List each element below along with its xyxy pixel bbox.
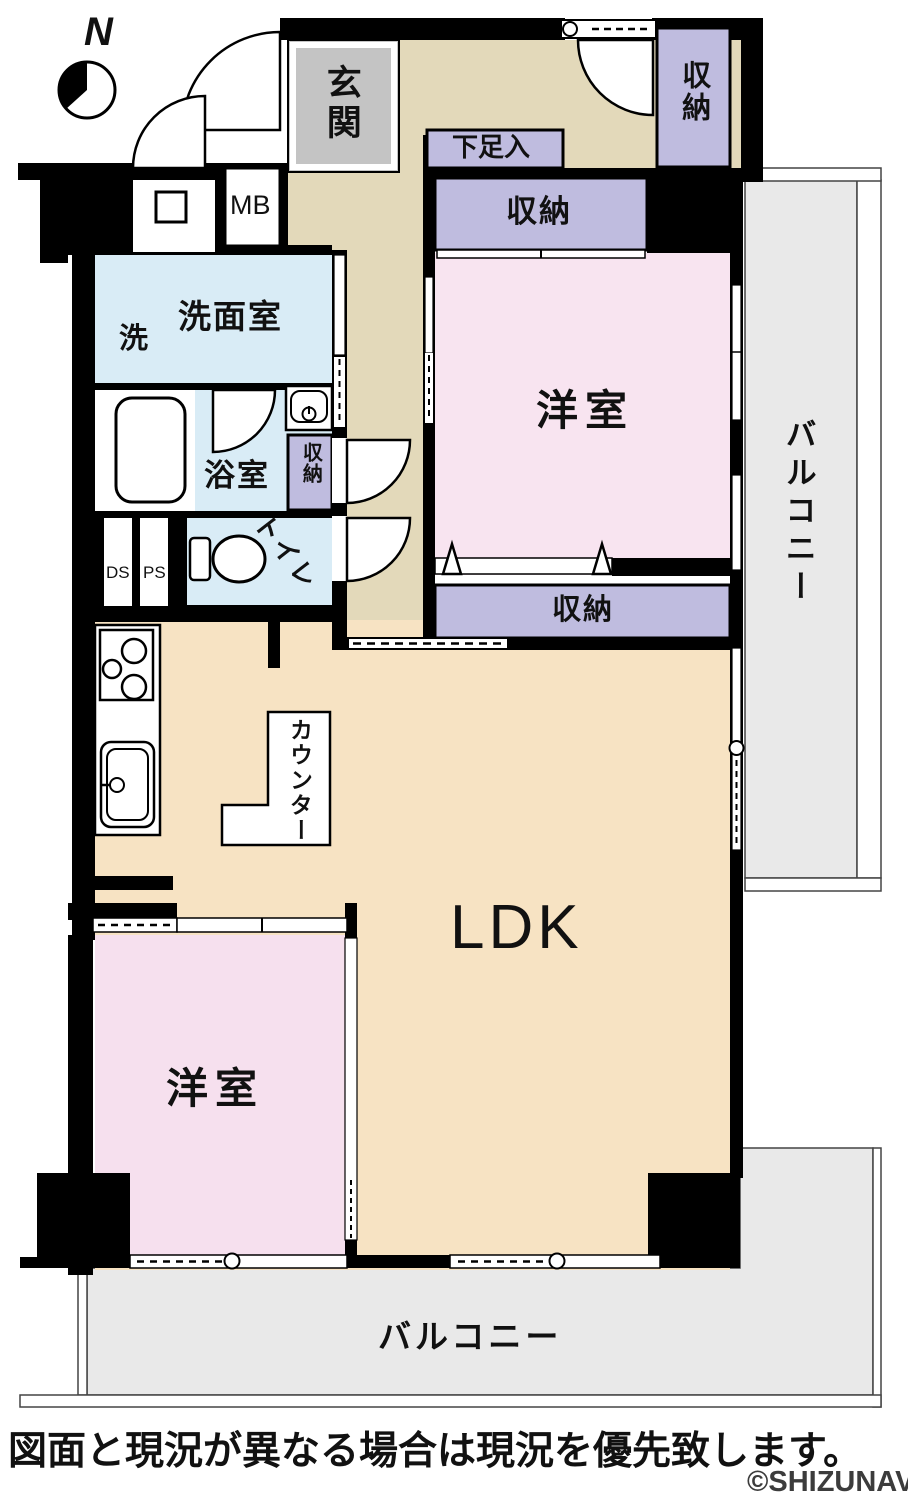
stove-icon xyxy=(100,630,153,700)
watermark-text: ©SHIZUNAVI xyxy=(747,1468,908,1498)
genkan-label: 玄関 xyxy=(323,64,359,144)
counter-label: カウンター xyxy=(287,718,310,843)
disclaimer-text: 図面と現況が異なる場合は現況を優先致します。 xyxy=(8,1432,862,1472)
bedroom1-label: 洋室 xyxy=(536,390,634,433)
mb-label: MB xyxy=(230,192,271,220)
bathroom-label: 浴室 xyxy=(204,460,270,492)
balcony-bottom-label: バルコニー xyxy=(378,1320,562,1354)
compass-north-label: N xyxy=(84,12,113,53)
washroom-label: 洗面室 xyxy=(178,300,283,334)
compass-icon xyxy=(59,62,115,118)
closet-small-label: 収納 xyxy=(300,442,320,484)
washbasin-icon xyxy=(286,386,332,430)
closet-h2-label: 収納 xyxy=(552,596,614,626)
closet-top-right-label: 収納 xyxy=(678,60,708,124)
floor-plan: N 玄関 MB 収納 下足入 収納 洋室 バルコニー 洗 洗面室 浴室 収納 ト… xyxy=(0,0,908,1500)
floor-plan-drawing xyxy=(0,0,908,1500)
ds-label: DS xyxy=(106,564,130,581)
bedroom2-label: 洋室 xyxy=(166,1068,264,1111)
balcony-right-label: バルコニー xyxy=(782,418,814,608)
bathtub-icon xyxy=(116,398,185,502)
toilet-icon xyxy=(190,536,265,582)
kitchen-sink-icon xyxy=(101,742,154,827)
shoe-cabinet-label: 下足入 xyxy=(452,134,530,161)
ldk-label: LDK xyxy=(450,896,583,959)
ps-label: PS xyxy=(143,564,166,581)
entrance-inner-door-swing xyxy=(133,96,205,168)
washer-label: 洗 xyxy=(119,325,148,355)
closet-h1-label: 収納 xyxy=(506,196,572,228)
